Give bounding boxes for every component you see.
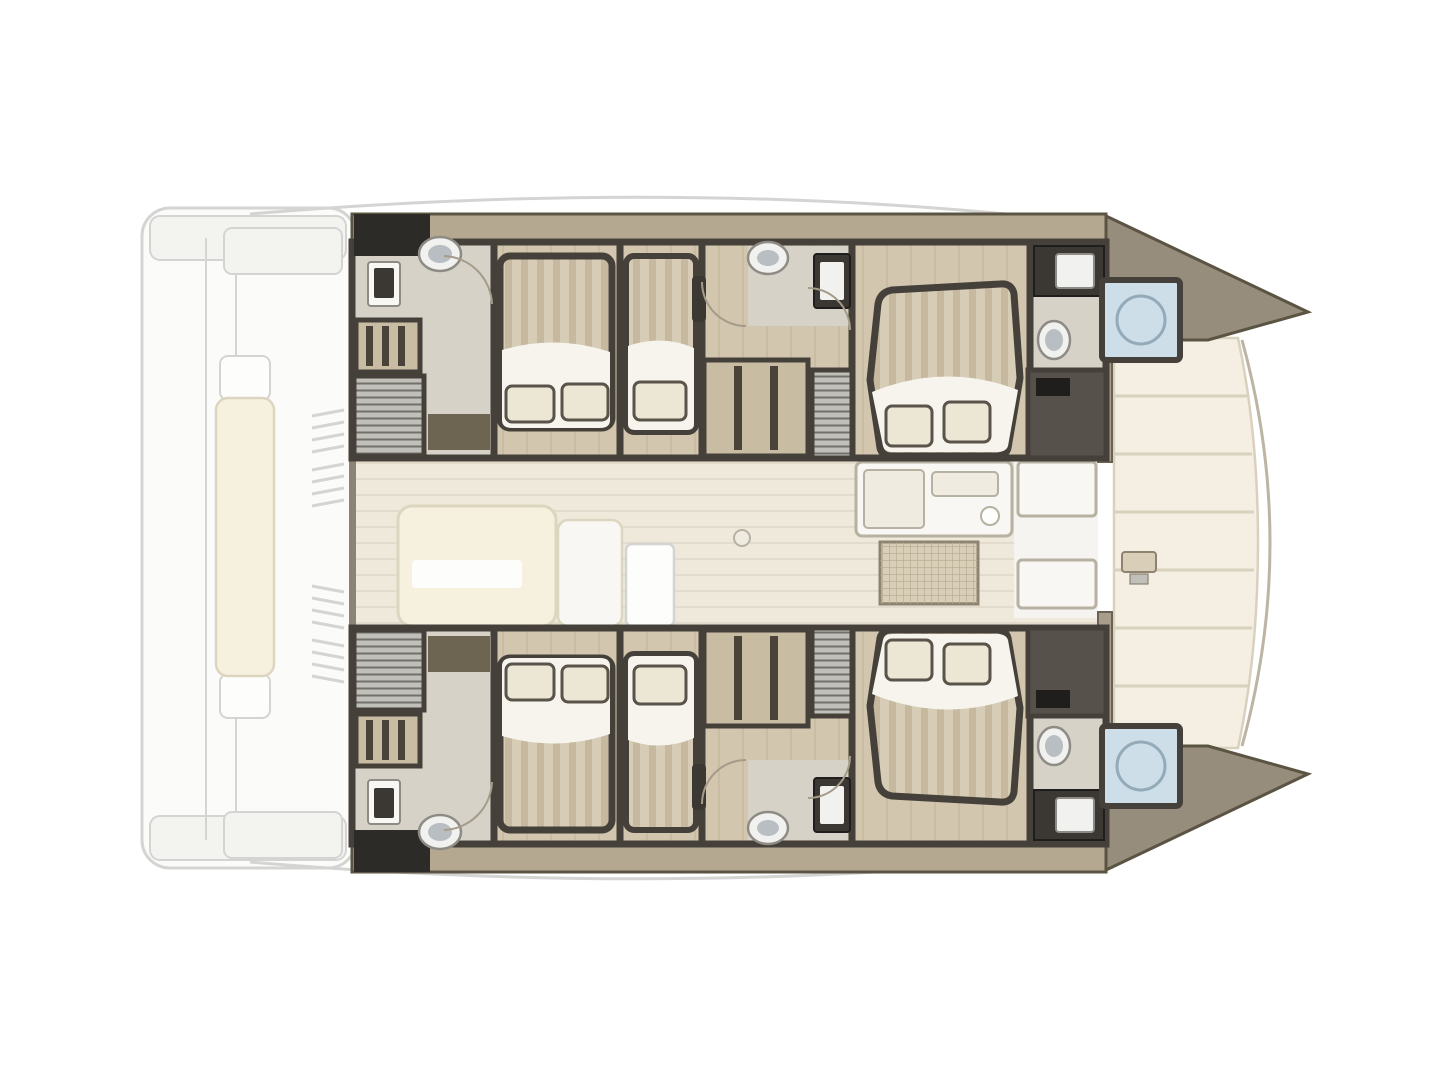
galley-stove: [864, 470, 924, 528]
mast-step-fitting: [734, 530, 750, 546]
wardrobe-divider: [398, 326, 405, 366]
saloon-table-grid: [880, 542, 978, 604]
bow-cabinet-hatch: [1056, 254, 1094, 288]
sink-bow-basin: [1045, 329, 1063, 351]
bench-end-top: [220, 356, 270, 400]
wardrobe-divider: [382, 326, 389, 366]
shelving-mid: [704, 360, 808, 456]
anchor-fitting: [1130, 574, 1148, 584]
pillow: [886, 406, 932, 446]
cockpit-bench: [216, 398, 274, 676]
foredeck: [1114, 338, 1270, 748]
windlass: [1122, 552, 1156, 572]
saloon-side-table: [626, 544, 674, 626]
shower-room: [1102, 280, 1180, 360]
pillow: [562, 384, 608, 420]
catamaran-floorplan: Catamaran interior layout floor plan, to…: [0, 0, 1440, 1080]
shelving-divider: [770, 366, 778, 450]
pillow: [634, 382, 686, 420]
floor-mat-aft: [428, 414, 490, 450]
aft-sliding-door-wall: [349, 458, 356, 628]
aft-step-top: [224, 228, 342, 274]
floorplan-stage: Catamaran interior layout floor plan, to…: [0, 0, 1440, 1080]
wardrobe-divider: [366, 326, 373, 366]
galley-worktop: [932, 472, 998, 496]
nav-counter-top: [1018, 462, 1096, 516]
sofa-seat-cushion: [412, 560, 522, 588]
technical-hatch: [1036, 378, 1070, 396]
aft-step-bottom: [224, 812, 342, 858]
pillow: [944, 402, 990, 442]
chaise-lounge: [558, 520, 622, 626]
toilet-mid-lid: [757, 250, 779, 266]
side-deck-band: [352, 214, 1106, 242]
bench-end-bottom: [220, 674, 270, 718]
bedside-shelf: [692, 276, 706, 322]
shelving-divider: [734, 366, 742, 450]
sink-aft: [374, 268, 394, 298]
galley-sink: [981, 507, 999, 525]
pillow: [506, 386, 554, 422]
nav-counter-bottom: [1018, 560, 1096, 608]
companionway-stairs-aft: [354, 376, 424, 456]
companionway-stairs-mid: [812, 370, 852, 458]
toilet-aft-lid: [428, 245, 452, 263]
